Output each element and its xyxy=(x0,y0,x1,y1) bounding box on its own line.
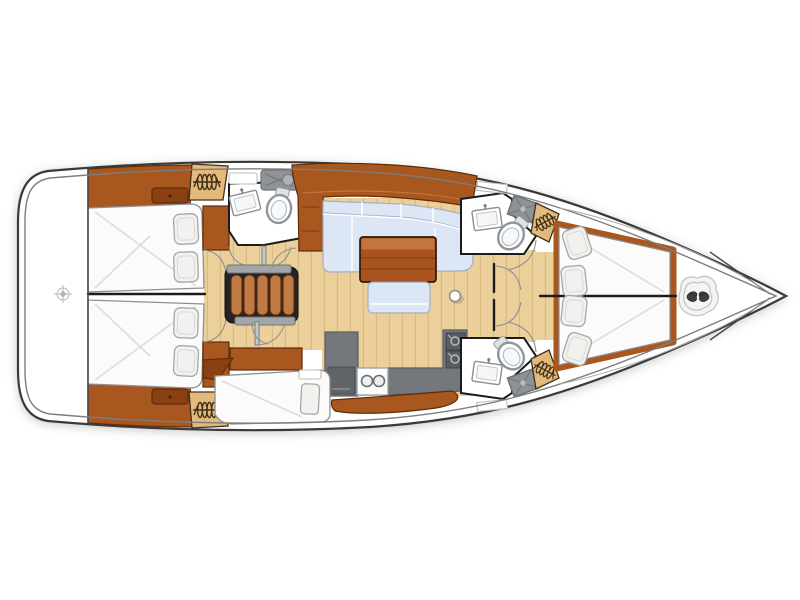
pillow xyxy=(173,252,198,283)
windlass xyxy=(679,276,718,315)
shelf xyxy=(299,370,321,379)
handrail-top xyxy=(227,265,291,273)
stove xyxy=(357,368,388,395)
shelf xyxy=(229,173,257,184)
pillow xyxy=(300,384,320,415)
door-leaf xyxy=(255,322,259,345)
ottoman xyxy=(368,282,430,313)
yacht-floor-plan xyxy=(0,0,800,600)
owner-cabin xyxy=(531,203,676,389)
galley-wood-band-left xyxy=(230,348,302,370)
floor-plan-canvas xyxy=(0,0,800,600)
saloon-table xyxy=(360,237,436,282)
handrail-bottom xyxy=(235,317,295,325)
pillow xyxy=(173,308,198,339)
refrigerator xyxy=(328,367,355,394)
pillow xyxy=(173,345,199,376)
pillow xyxy=(173,213,199,244)
pillow xyxy=(560,295,587,327)
pillow xyxy=(560,265,587,297)
